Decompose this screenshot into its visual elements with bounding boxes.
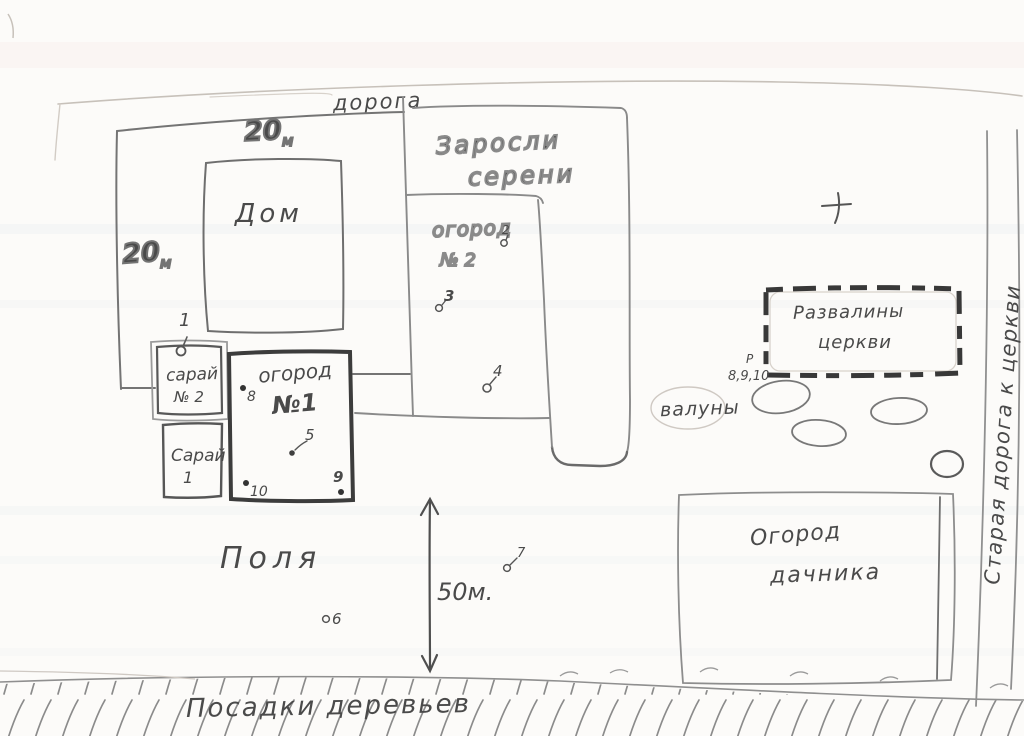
point1-label: 1 — [179, 310, 190, 331]
paper-background — [0, 0, 1024, 736]
point8-label: 8 — [247, 389, 256, 405]
point5-label: 5 — [305, 426, 315, 444]
scan-band — [0, 648, 1024, 656]
dacha-garden-label-2: дачника — [769, 560, 882, 589]
tree-plantings-label: Посадки деревьев — [186, 689, 471, 724]
ruins-points-note: 8,9,10 — [728, 369, 769, 384]
point8-marker — [240, 385, 246, 391]
point1-marker — [177, 347, 186, 356]
garden2-label-1: огород — [432, 215, 513, 242]
fields-label: Поля — [220, 541, 322, 576]
point5-marker — [289, 450, 295, 456]
scan-band — [0, 224, 1024, 234]
road-label: дорога — [331, 88, 422, 115]
point9-label: 9 — [333, 468, 343, 486]
scan-band — [0, 506, 1024, 515]
garden1-label-2: №1 — [270, 388, 319, 420]
shed1-label-2: 1 — [183, 468, 193, 487]
plot-width-value: 20 — [243, 115, 282, 148]
point9-marker — [338, 489, 344, 495]
shed1-label-1: Сарай — [171, 446, 226, 466]
thicket-label-2: серени — [467, 160, 575, 192]
point7-label: 7 — [517, 546, 526, 561]
shed2-label-1: сарай — [166, 364, 219, 386]
ruins-point-marker: Р — [746, 352, 754, 366]
point10-marker — [243, 480, 249, 486]
ruins-label-2: церкви — [818, 332, 892, 353]
scale-label: 50м. — [437, 578, 493, 606]
boulders-label: валуны — [660, 396, 740, 421]
point2-label: 2 — [502, 223, 510, 237]
plot-height-value: 20 — [121, 237, 161, 271]
plot-width-unit: м — [282, 132, 293, 150]
house-label: Дом — [234, 199, 303, 229]
scan-band — [0, 42, 1024, 68]
ruins-label-1: Развалины — [793, 301, 905, 324]
garden2-label-2: № 2 — [439, 250, 476, 271]
shed2-label-2: № 2 — [173, 388, 204, 406]
site-plan-sketch: дорога 20 м 20 м Дом Заросли серени огор… — [0, 0, 1024, 736]
point4-label: 4 — [493, 362, 503, 380]
plot-height-unit: м — [160, 254, 171, 272]
point3-label: 3 — [444, 287, 454, 305]
point6-label: 6 — [332, 610, 342, 628]
point10-label: 10 — [250, 484, 268, 500]
scanned-hand-drawn-map: дорога 20 м 20 м Дом Заросли серени огор… — [0, 0, 1024, 736]
paper — [0, 0, 1024, 736]
